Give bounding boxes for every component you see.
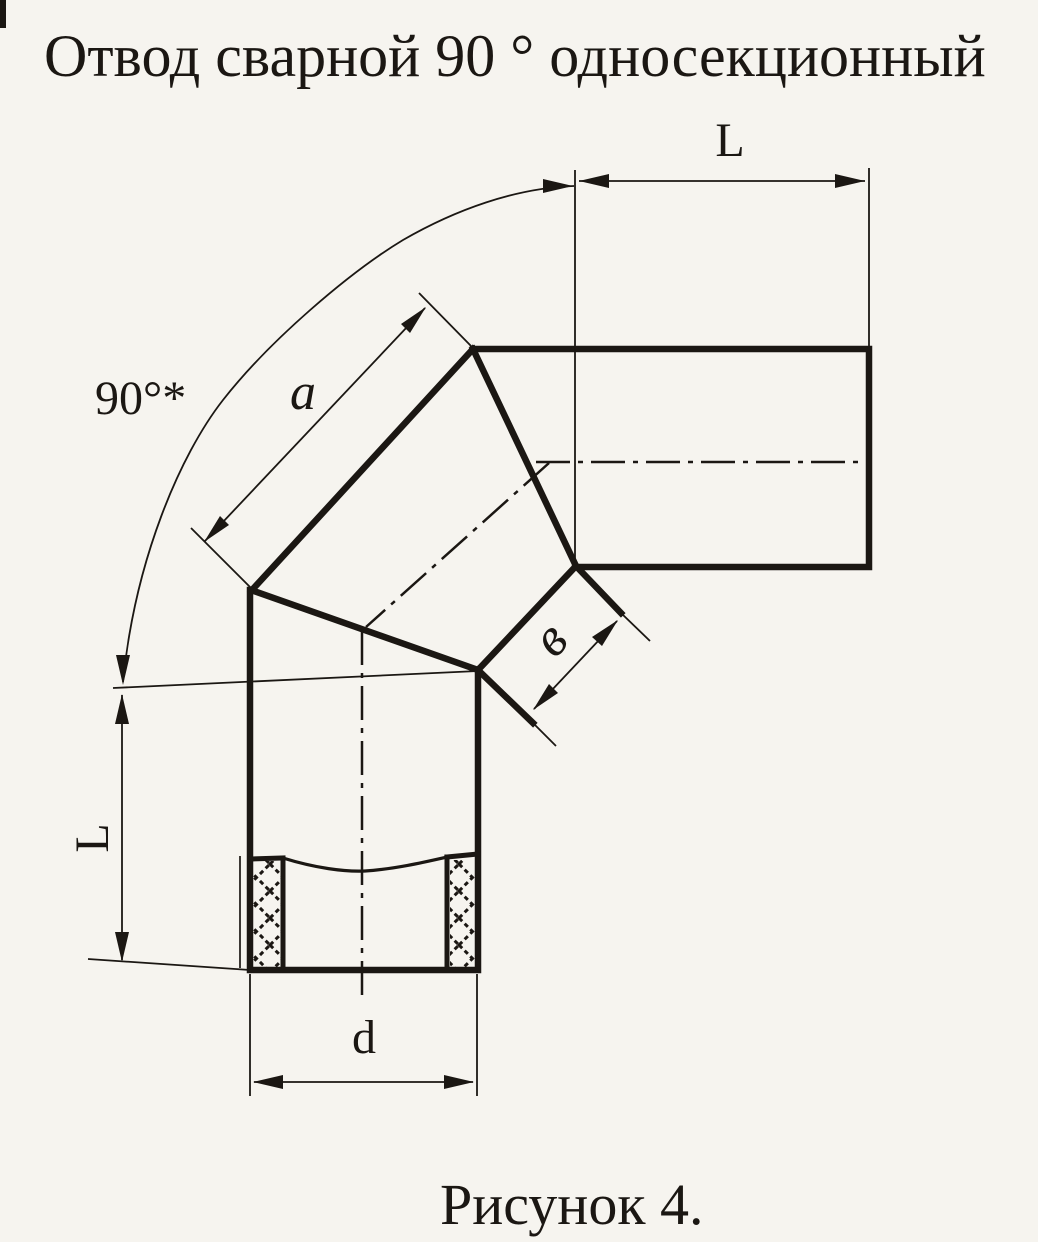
hatched-wall-right	[450, 860, 478, 967]
label-section-outer-a: a	[290, 364, 316, 421]
angle-arc-90	[123, 186, 574, 682]
section-axis-centerline	[366, 463, 549, 627]
scanned-drawing-page: Отвод сварной 90 ° односекционный	[0, 0, 1038, 1242]
label-length-top: L	[715, 114, 744, 167]
centerlines	[362, 462, 866, 1002]
label-section-inner-b: в	[520, 610, 580, 668]
figure-caption: Рисунок 4.	[440, 1172, 704, 1237]
ext-line-b-bottom	[533, 723, 556, 746]
dimension-lines	[122, 181, 865, 1082]
label-angle-90: 90°*	[95, 372, 186, 425]
elbow-drawing-canvas: Отвод сварной 90 ° односекционный	[0, 0, 1038, 1242]
arrowhead-arc-top	[543, 179, 573, 193]
ext-line-inlet-top	[113, 671, 478, 688]
hatched-wall-left	[253, 861, 283, 967]
arrowhead-L-left-top	[115, 694, 129, 724]
dimension-labels: L L 90°* a в d	[66, 114, 745, 1064]
arrowhead-L-top-left	[579, 174, 609, 188]
inner-face-bottom-edge	[478, 670, 533, 723]
scan-artifact	[0, 0, 6, 28]
ext-line-inlet-bottom	[88, 959, 250, 970]
weld-seam-bottom	[251, 590, 478, 670]
drawing-title: Отвод сварной 90 ° односекционный	[44, 23, 986, 89]
middle-section-outer-edge	[252, 349, 473, 590]
break-line	[283, 857, 447, 871]
arrowhead-L-top-right	[835, 174, 865, 188]
arrowhead-arc-bottom	[116, 655, 130, 685]
label-length-left: L	[66, 823, 119, 852]
arrowhead-L-left-bottom	[115, 932, 129, 962]
ext-line-b-top	[621, 613, 650, 641]
inner-face-top-edge	[576, 566, 621, 613]
ext-line-a-top	[419, 293, 472, 347]
weld-seam-top	[473, 349, 576, 566]
socket-section	[240, 854, 478, 970]
ext-line-a-bottom	[191, 528, 251, 588]
arrowhead-d-right	[444, 1075, 474, 1089]
outlet-pipe-outline	[473, 349, 869, 567]
dim-line-a	[205, 308, 425, 541]
arrowheads	[115, 174, 865, 1089]
wall-top-left	[251, 858, 283, 859]
wall-top-right	[447, 854, 478, 857]
arrowhead-d-left	[253, 1075, 283, 1089]
label-diameter-d: d	[352, 1011, 376, 1064]
